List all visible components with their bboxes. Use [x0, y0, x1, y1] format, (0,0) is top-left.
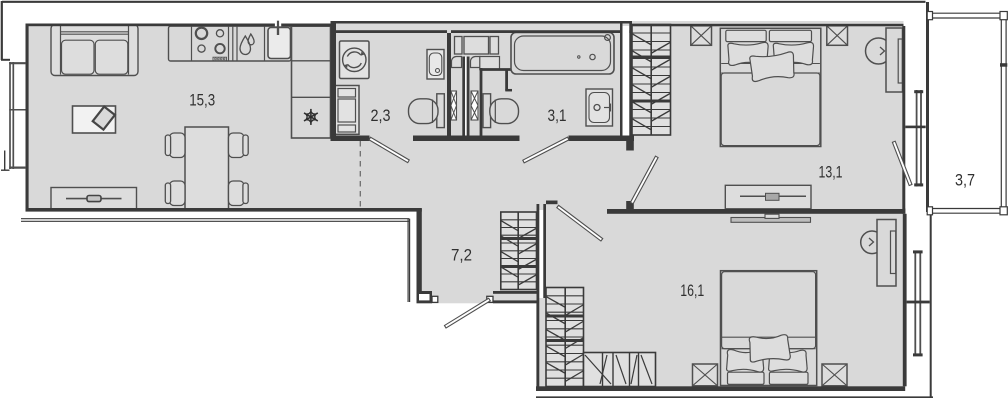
svg-text:7,2: 7,2: [451, 246, 472, 265]
svg-text:15,3: 15,3: [189, 90, 215, 109]
svg-text:3,1: 3,1: [548, 106, 567, 125]
svg-text:16,1: 16,1: [680, 281, 704, 300]
svg-text:13,1: 13,1: [819, 162, 843, 181]
svg-text:2,3: 2,3: [371, 106, 391, 125]
svg-text:3,7: 3,7: [955, 170, 975, 189]
